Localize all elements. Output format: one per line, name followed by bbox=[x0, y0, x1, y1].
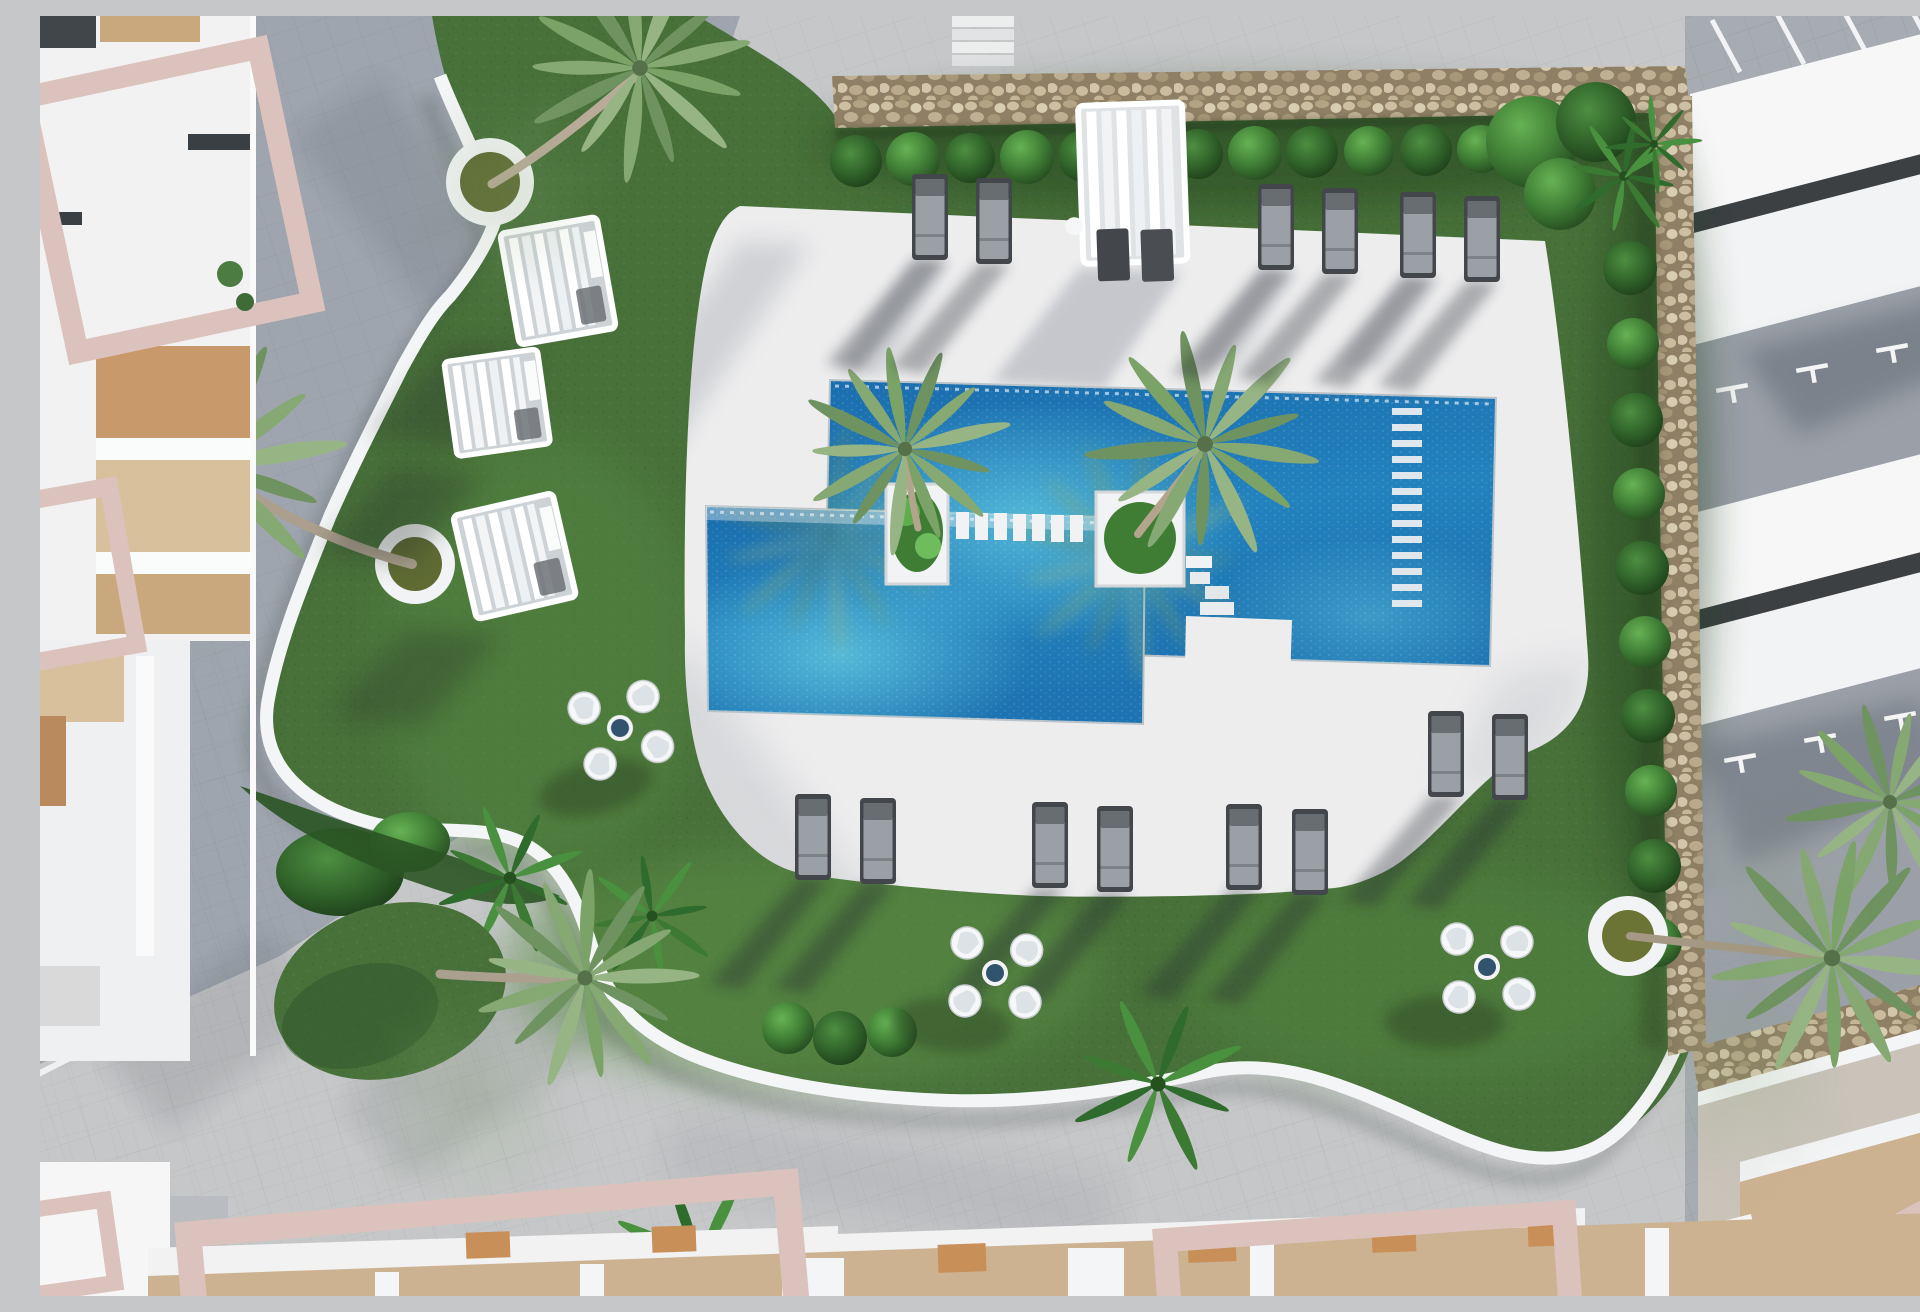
stepping-stones bbox=[956, 512, 1083, 542]
aerial-pool-render: Top-down architectural visualization of … bbox=[40, 16, 1920, 1296]
pergola-lounger bbox=[1096, 228, 1130, 281]
render-canvas: Aerial 3D render of a resort pool garden bbox=[40, 16, 1920, 1296]
pergola-lounger bbox=[1140, 229, 1174, 282]
